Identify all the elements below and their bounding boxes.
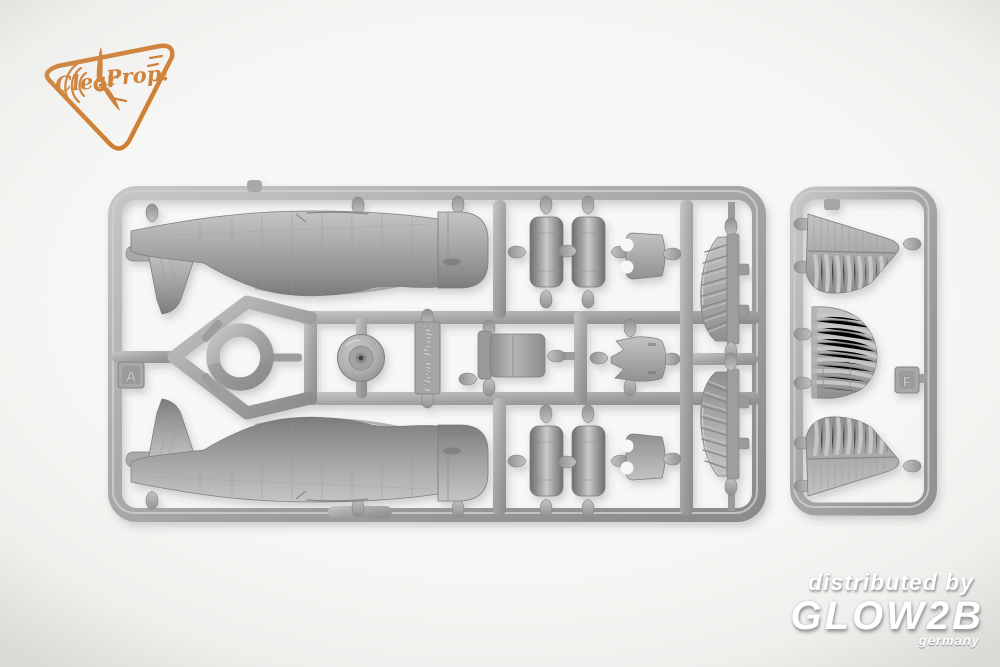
part-rudder [794, 306, 877, 398]
watermark-glow2b: GLOW2B [790, 596, 984, 636]
sprue-f-letter: F [903, 374, 912, 390]
part-fuselage-half-lower [126, 399, 681, 517]
part-fuselage-half-upper [126, 196, 681, 314]
product-photo-model-kit-sprues: Clear Prop! [0, 0, 1000, 667]
sprue-f: F [794, 191, 931, 509]
sprue-photo-canvas: Clear Prop! [0, 0, 1000, 667]
molded-brand-text: Clear Prop! [422, 324, 434, 392]
sprue-a-letter: A [126, 369, 137, 386]
part-wheel-disc [338, 335, 385, 382]
clear-prop-logo: Clear Prop! [47, 46, 172, 149]
part-cowl-flaps [590, 319, 680, 396]
part-cowling-ring [200, 319, 302, 397]
distributor-watermark: distributed by GLOW2B germany [790, 571, 984, 647]
part-louver-lower [701, 353, 749, 511]
sprue-a-letter-tag: A [118, 362, 144, 388]
part-stabilizer-upper [794, 214, 921, 293]
part-louver-upper [701, 202, 749, 360]
sprue-a: Clear Prop! A [112, 180, 760, 518]
watermark-distributed-by: distributed by [790, 571, 984, 594]
part-stabilizer-lower [794, 417, 921, 496]
logo-word-prop: Prop! [104, 60, 172, 91]
part-cowl-cylinder [459, 320, 575, 396]
molded-brand-tag: Clear Prop! [415, 309, 440, 408]
sprue-f-letter-tag: F [895, 367, 927, 393]
